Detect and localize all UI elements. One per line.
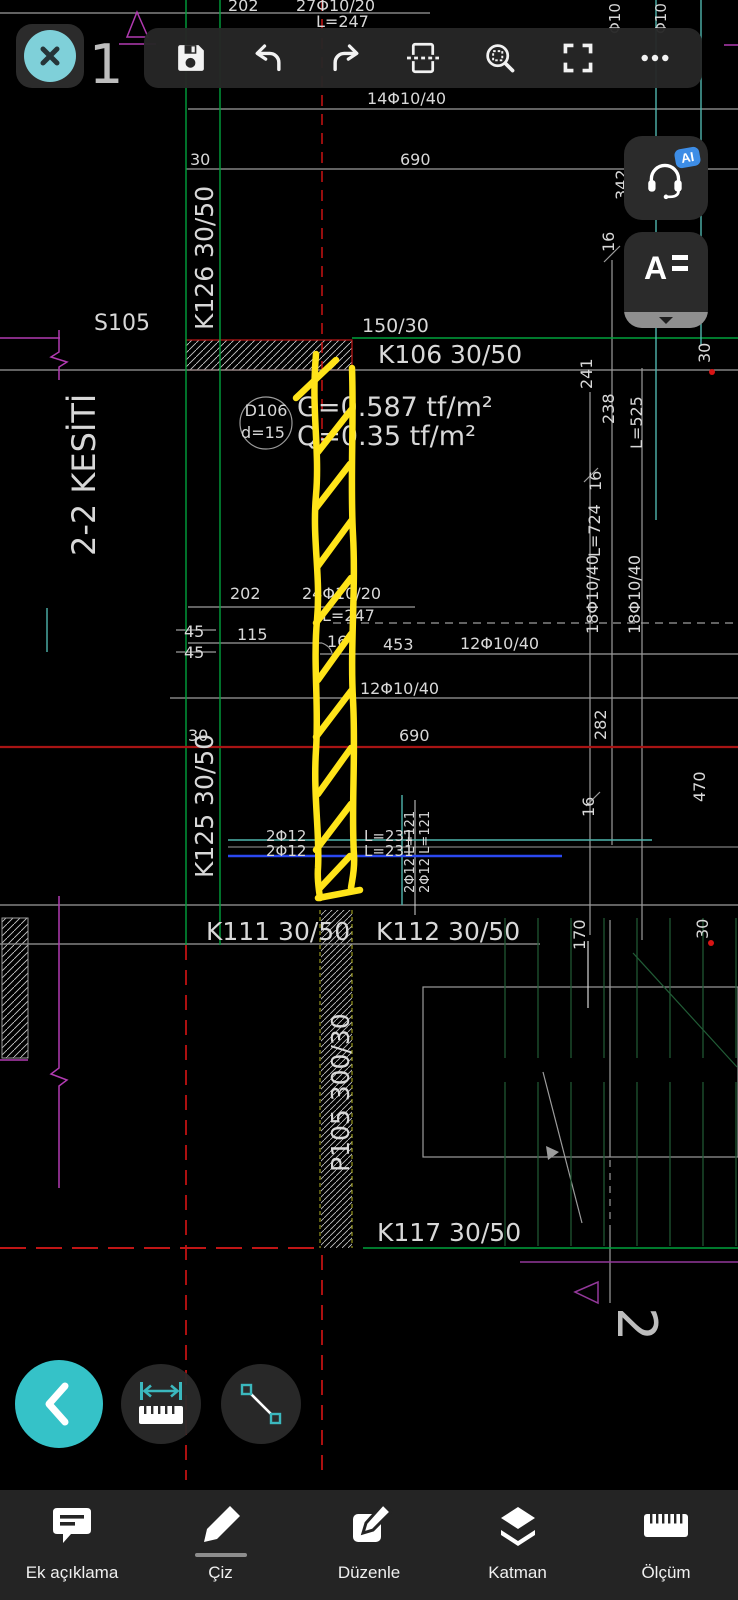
drawing-label: 2: [605, 1307, 668, 1341]
drawing-label: 202: [230, 584, 261, 603]
nav-label: Çiz: [208, 1563, 233, 1583]
drawing-label: 690: [399, 726, 430, 745]
nav-item-layers[interactable]: Katman: [468, 1502, 568, 1583]
layers-icon: [494, 1502, 542, 1550]
zoom-selection-icon: [484, 42, 516, 74]
drawing-label: 2Φ12: [266, 842, 306, 860]
fullscreen-icon: [562, 42, 594, 74]
active-indicator: [492, 1553, 544, 1557]
drawing-label: 12Φ10/40: [460, 634, 539, 653]
drawing-label: P105 300/30: [326, 1013, 355, 1172]
rebar-lines-teal: [47, 0, 701, 905]
close-button[interactable]: [16, 24, 84, 88]
drawing-label: 282: [591, 709, 610, 740]
drawing-label: 12Φ10/40: [360, 679, 439, 698]
save-icon: [176, 43, 206, 73]
comment-icon: [48, 1502, 96, 1550]
svg-text:A: A: [644, 250, 667, 286]
drawing-label: 238: [599, 393, 618, 424]
undo-button[interactable]: [246, 36, 290, 80]
ai-badge: AI: [674, 146, 702, 169]
bottom-nav: Ek açıklama Çiz Düzenle Katman: [0, 1490, 738, 1600]
nav-item-annotation[interactable]: Ek açıklama: [22, 1502, 122, 1583]
drawing-label: K106 30/50: [378, 340, 522, 369]
drawing-label: 30: [190, 150, 210, 169]
stair-grid: [505, 918, 737, 1246]
drawing-label: d=15: [241, 423, 285, 442]
drawing-label: 16: [586, 471, 605, 491]
nav-item-measure[interactable]: Ölçüm: [616, 1502, 716, 1583]
drawing-label: 18Φ10/40: [583, 555, 602, 634]
drawing-label: 202: [228, 0, 259, 15]
drawing-label: 170: [570, 919, 589, 950]
drawing-label: 30: [693, 919, 712, 939]
page-section-button[interactable]: [401, 36, 445, 80]
more-button[interactable]: [633, 36, 677, 80]
drawing-labels: 20227Φ10/20L=247Φ10Φ1014Φ10/403069034216…: [65, 0, 714, 1341]
drawing-label: 16: [599, 232, 618, 252]
redo-button[interactable]: [324, 36, 368, 80]
nav-label: Ölçüm: [641, 1563, 690, 1583]
drawing-label: 1: [89, 33, 123, 96]
drawing-label: K112 30/50: [376, 917, 520, 946]
drawing-label: G=0.587 tf/m²: [297, 392, 493, 423]
walkline-arrow: [415, 800, 588, 1160]
page-section-icon: [407, 42, 439, 74]
drawing-label: 690: [400, 150, 431, 169]
drawing-label: 470: [690, 771, 709, 802]
drawing-label: D106: [245, 401, 288, 420]
zoom-selection-button[interactable]: [478, 36, 522, 80]
chevron-left-icon: [19, 1364, 99, 1444]
drawing-label: L=525: [627, 396, 646, 449]
line-tool-icon: [238, 1381, 284, 1427]
nav-label: Katman: [488, 1563, 547, 1583]
fullscreen-button[interactable]: [556, 36, 600, 80]
nav-label: Düzenle: [338, 1563, 400, 1583]
close-icon: [24, 30, 76, 82]
top-toolbar: [144, 28, 702, 88]
drawing-label: K125 30/50: [190, 734, 219, 878]
drawing-label: 2Φ12 L=121: [403, 811, 418, 893]
text-reader-button[interactable]: A: [624, 232, 708, 328]
undo-icon: [252, 42, 284, 74]
drawing-label: K126 30/50: [190, 186, 219, 330]
active-indicator: [195, 1553, 247, 1557]
drawing-label: 18Φ10/40: [625, 555, 644, 634]
ai-assistant-button[interactable]: AI: [624, 136, 708, 220]
active-indicator: [640, 1553, 692, 1557]
chevron-down-icon: [659, 317, 673, 324]
active-indicator: [343, 1553, 395, 1557]
collapse-handle[interactable]: [624, 312, 708, 328]
drawing-label: 16: [579, 797, 598, 817]
hatched-sections: [2, 340, 352, 1248]
measure-tool-button[interactable]: [121, 1364, 201, 1444]
drawing-label: 30: [695, 343, 714, 363]
nav-label: Ek açıklama: [26, 1563, 119, 1583]
drawing-label: 2Φ12 L=121: [418, 811, 433, 893]
pencil-icon: [197, 1502, 245, 1550]
more-icon: [639, 42, 671, 74]
drawing-label: 45: [184, 643, 204, 662]
drawing-label: 150/30: [362, 315, 429, 337]
measure-ruler-icon: [137, 1380, 185, 1428]
back-button[interactable]: [15, 1360, 103, 1448]
app-screen: 20227Φ10/20L=247Φ10Φ1014Φ10/403069034216…: [0, 0, 738, 1600]
active-indicator: [46, 1553, 98, 1557]
drawing-label: K111 30/50: [206, 917, 350, 946]
save-button[interactable]: [169, 36, 213, 80]
nav-item-draw[interactable]: Çiz: [171, 1502, 271, 1583]
nav-item-edit[interactable]: Düzenle: [319, 1502, 419, 1583]
drawing-label: 241: [577, 358, 596, 389]
text-reader-icon: A: [640, 246, 692, 290]
drawing-label: 115: [237, 625, 268, 644]
drawing-label: 2-2 KESİTİ: [65, 394, 103, 556]
drawing-label: 453: [383, 635, 414, 654]
redo-icon: [330, 42, 362, 74]
axis-lines-red: [0, 0, 738, 1480]
drawing-label: 14Φ10/40: [367, 89, 446, 108]
drawing-label: S105: [94, 311, 150, 336]
edit-square-icon: [345, 1502, 393, 1550]
drawing-label: 45: [184, 622, 204, 641]
ruler-icon: [642, 1502, 690, 1550]
drawing-label: L=724: [585, 504, 604, 557]
line-tool-button[interactable]: [221, 1364, 301, 1444]
drawing-label: K117 30/50: [377, 1218, 521, 1247]
